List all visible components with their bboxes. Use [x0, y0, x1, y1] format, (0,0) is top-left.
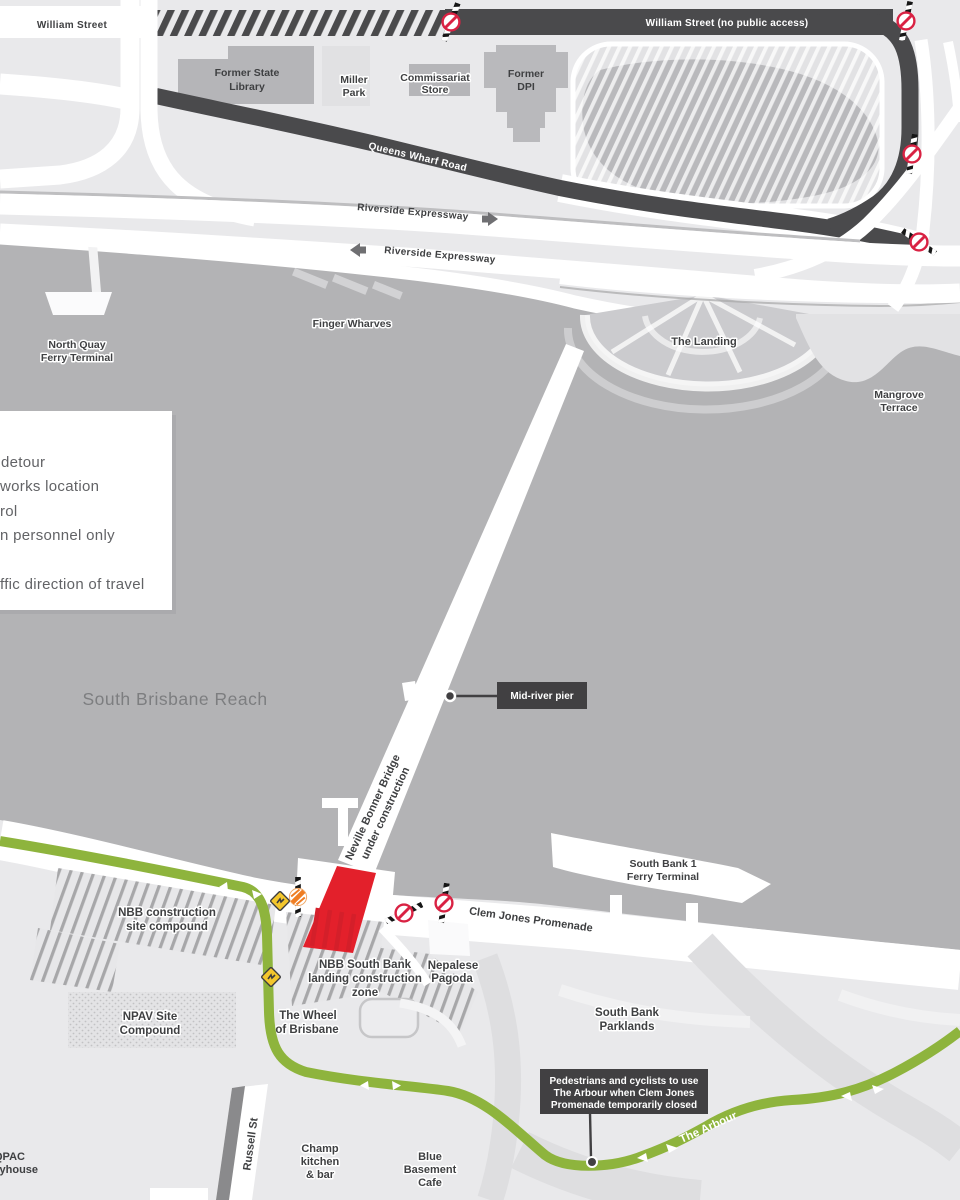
svg-text:NBB construction: NBB construction [118, 907, 216, 919]
svg-text:Store: Store [422, 84, 449, 96]
svg-text:Mid-river pier: Mid-river pier [510, 691, 573, 702]
svg-text:zone: zone [352, 987, 378, 999]
svg-text:Park: Park [343, 87, 366, 99]
svg-text:Basement: Basement [404, 1164, 457, 1176]
svg-text:Champ: Champ [301, 1143, 339, 1155]
svg-text:of Brisbane: of Brisbane [275, 1024, 338, 1036]
svg-text:The Wheel: The Wheel [279, 1010, 337, 1022]
svg-text:William Street: William Street [37, 20, 108, 31]
svg-text:Compound: Compound [120, 1025, 181, 1037]
svg-text:Playhouse: Playhouse [0, 1164, 38, 1176]
svg-text:Parklands: Parklands [600, 1021, 655, 1033]
svg-text:Miller: Miller [340, 74, 367, 86]
svg-text:Cafe: Cafe [418, 1177, 442, 1189]
svg-text:Library: Library [229, 81, 265, 93]
svg-text:ffic direction of travel: ffic direction of travel [0, 576, 145, 593]
svg-text:South Bank: South Bank [595, 1007, 659, 1019]
svg-text:North Quay: North Quay [48, 339, 105, 351]
svg-text:landing construction: landing construction [308, 973, 422, 985]
svg-text:kitchen: kitchen [301, 1156, 340, 1168]
svg-text:Mangrove: Mangrove [874, 389, 924, 401]
svg-text:Ferry Terminal: Ferry Terminal [627, 871, 699, 883]
svg-text:Commissariat: Commissariat [400, 72, 470, 84]
svg-text:The Landing: The Landing [671, 336, 736, 348]
svg-text:site compound: site compound [126, 921, 208, 933]
svg-text:Pagoda: Pagoda [431, 973, 473, 985]
svg-text:n personnel only: n personnel only [0, 527, 115, 544]
svg-text:NPAV Site: NPAV Site [123, 1011, 178, 1023]
svg-text:Ferry Terminal: Ferry Terminal [41, 352, 113, 364]
svg-text:Former: Former [508, 68, 544, 80]
svg-text:Terrace: Terrace [880, 402, 917, 414]
svg-text:Blue: Blue [418, 1151, 442, 1163]
svg-text:works location: works location [0, 478, 99, 495]
svg-text:William Street (no public acce: William Street (no public access) [646, 18, 809, 29]
svg-text:detour: detour [1, 454, 45, 471]
svg-text:Pedestrians and cyclists to us: Pedestrians and cyclists to use [550, 1076, 699, 1087]
svg-text:DPI: DPI [517, 81, 535, 93]
svg-text:Finger Wharves: Finger Wharves [313, 318, 392, 330]
svg-text:The Arbour when Clem Jones: The Arbour when Clem Jones [554, 1088, 695, 1099]
svg-text:South Bank 1: South Bank 1 [629, 858, 696, 870]
svg-text:& bar: & bar [306, 1169, 335, 1181]
svg-text:Former State: Former State [215, 67, 280, 79]
svg-text:NBB South Bank: NBB South Bank [319, 959, 412, 971]
svg-text:QPAC: QPAC [0, 1151, 25, 1163]
svg-text:Nepalese: Nepalese [428, 960, 479, 972]
svg-text:rol: rol [0, 503, 18, 520]
svg-text:South Brisbane Reach: South Brisbane Reach [82, 689, 267, 709]
svg-text:Promenade temporarily closed: Promenade temporarily closed [551, 1100, 697, 1111]
